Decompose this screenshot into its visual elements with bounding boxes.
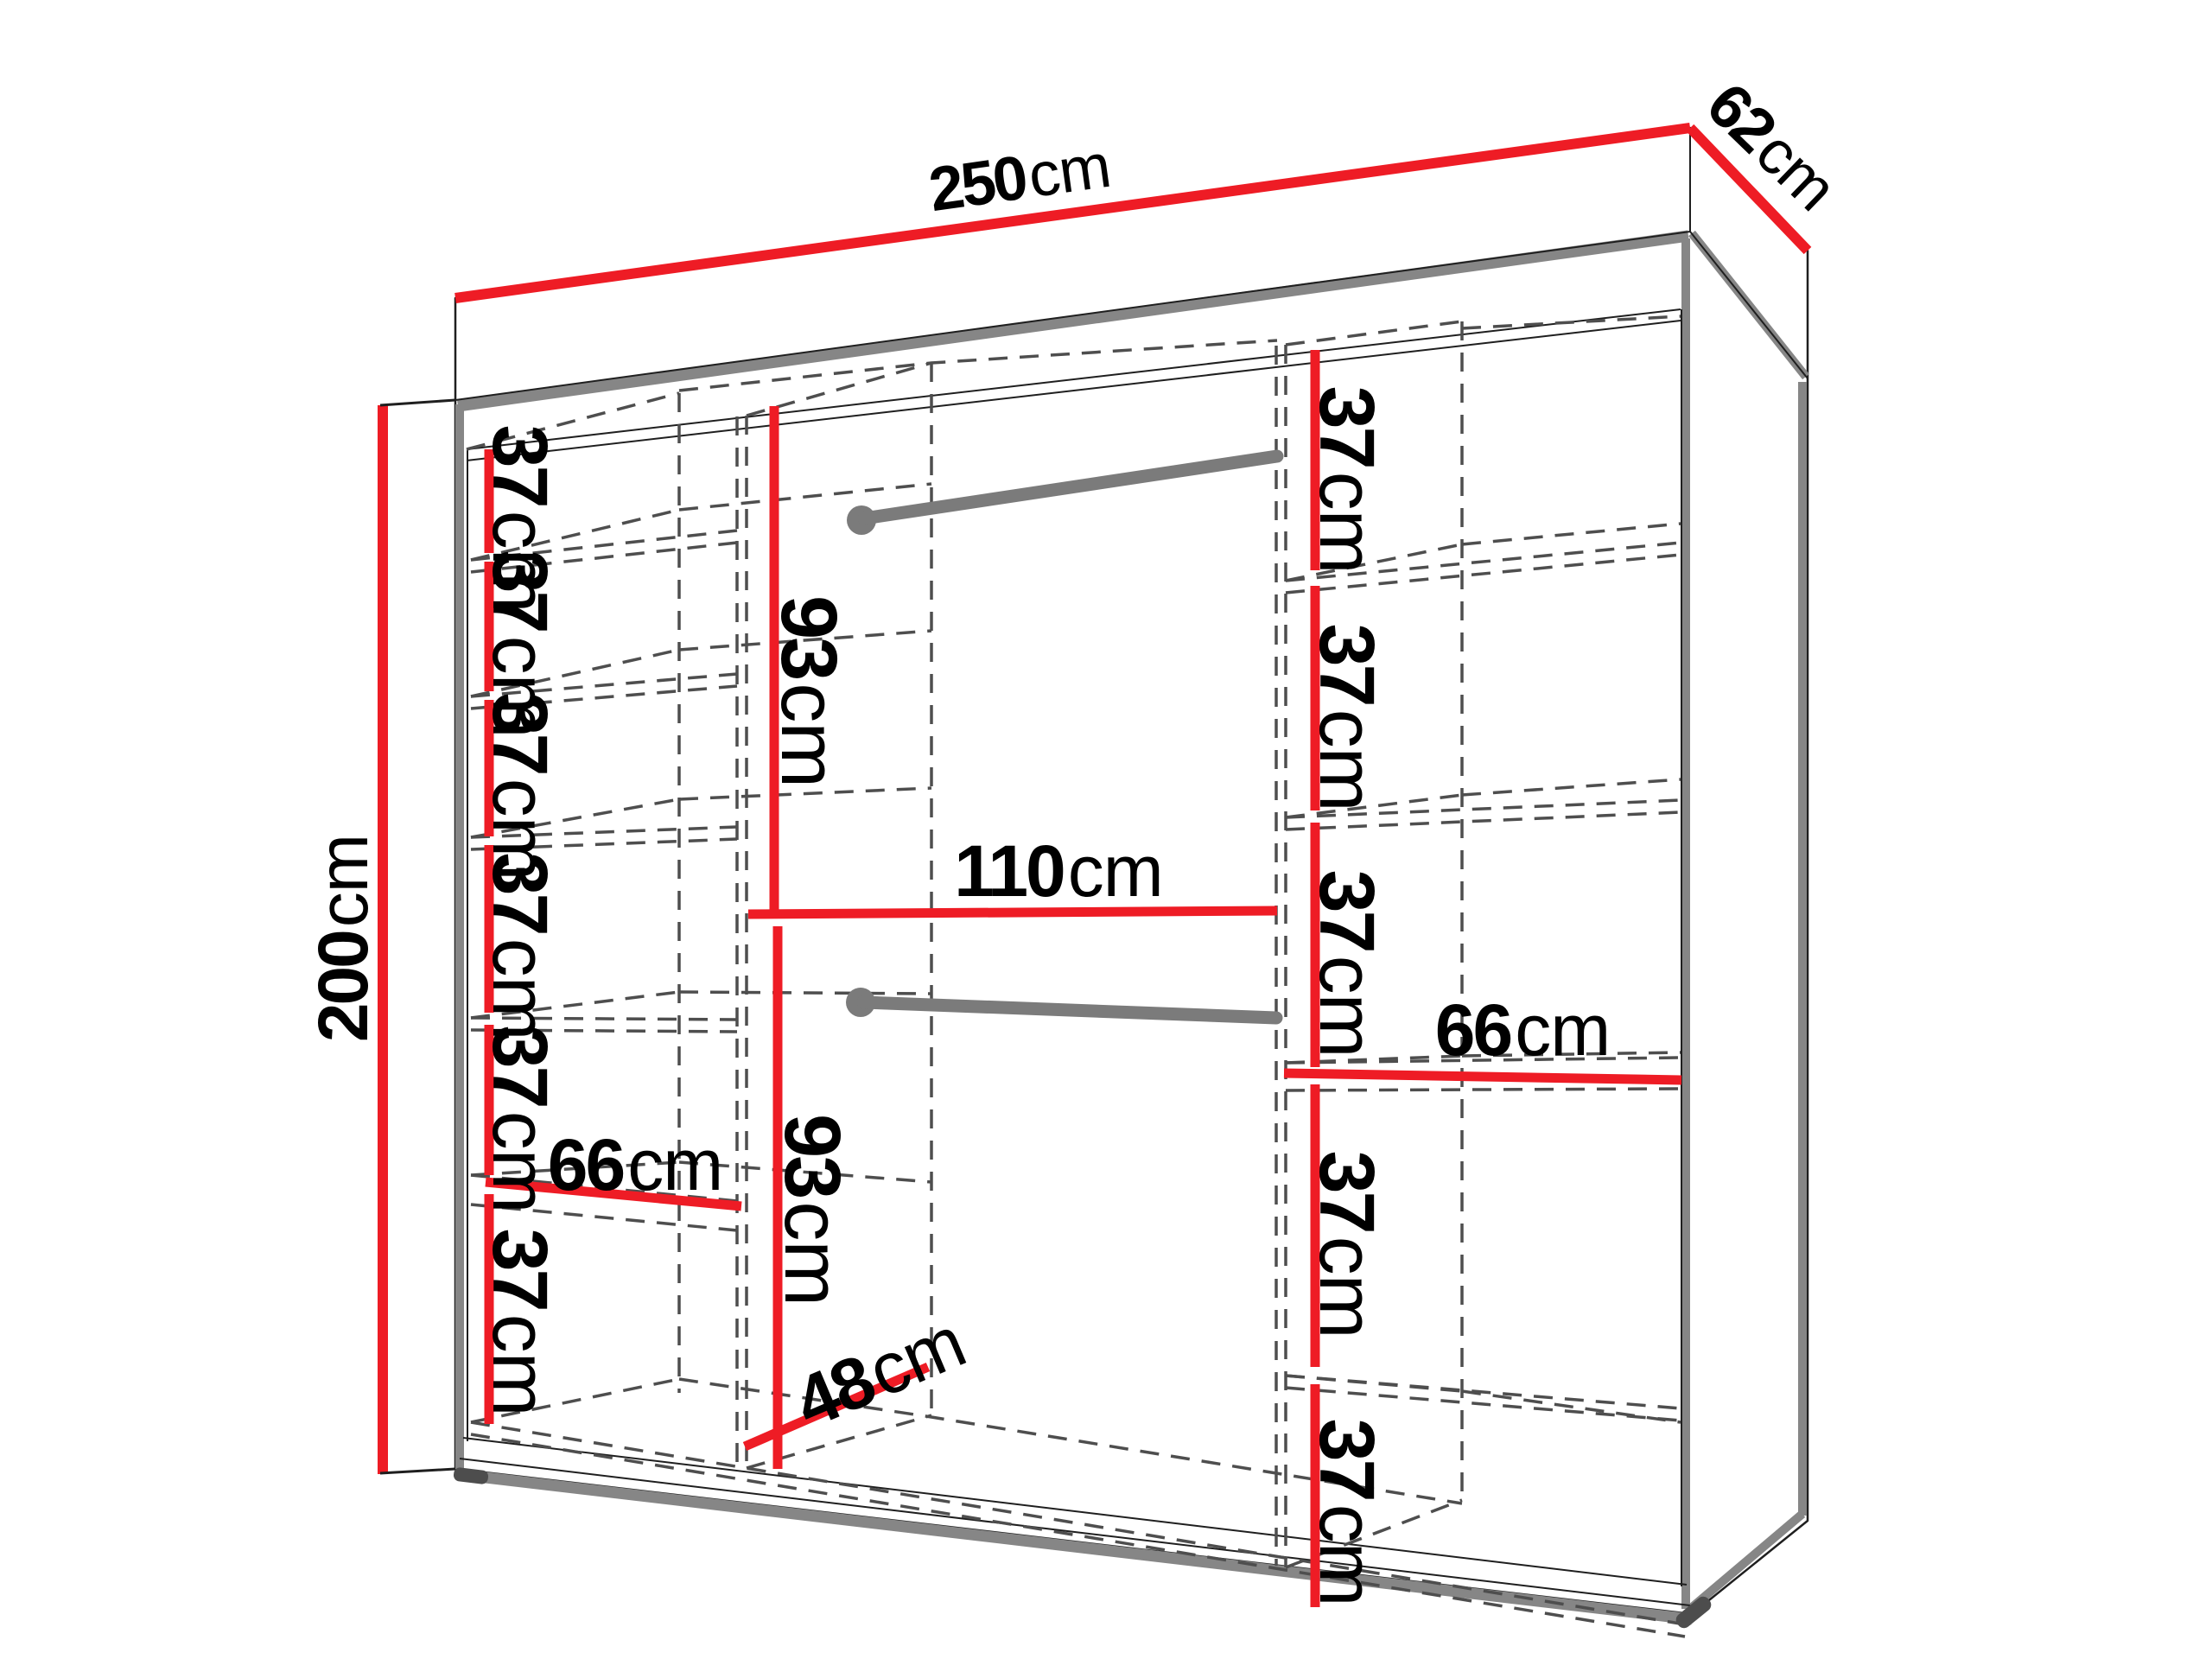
lower-hanging-height-label: 93cm	[768, 1114, 856, 1306]
left-shelf-height-label-4: 37cm	[476, 852, 563, 1039]
upper-hanging-height-label: 93cm	[765, 595, 853, 787]
right-shelf-width-label: 66cm	[1435, 989, 1610, 1071]
right-shelf-height-label-5: 37cm	[1303, 1418, 1389, 1605]
height-top-tick	[380, 400, 455, 405]
wardrobe-dimension-diagram: 250cm 62cm 200cm 93cm 93cm 110cm 66cm 66…	[0, 0, 2212, 1659]
height-dimension-label: 200cm	[304, 835, 383, 1042]
right-shelf-height-label-2: 37cm	[1303, 623, 1389, 810]
left-shelf-height-label-6: 37cm	[476, 1228, 563, 1415]
right-shelf-height-label-3: 37cm	[1303, 869, 1389, 1057]
right-shelf-height-label-1: 37cm	[1303, 385, 1389, 573]
hanging-width-label: 110cm	[954, 830, 1163, 912]
right-shelf-height-label-4: 37cm	[1303, 1150, 1389, 1338]
height-bottom-tick	[380, 1469, 455, 1473]
left-shelf-height-label-5: 37cm	[476, 1025, 563, 1212]
left-shelf-width-label: 66cm	[548, 1124, 722, 1205]
diagram-page: 250cm 62cm 200cm 93cm 93cm 110cm 66cm 66…	[0, 0, 2212, 1659]
